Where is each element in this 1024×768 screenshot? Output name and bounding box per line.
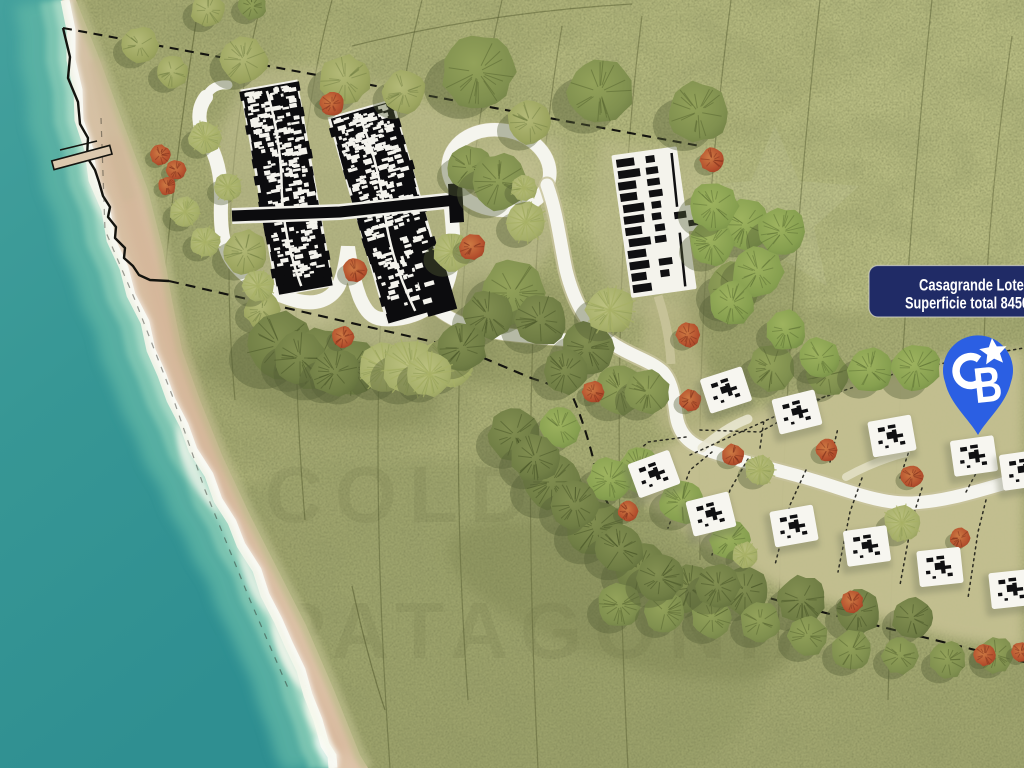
svg-text:B: B: [971, 355, 1005, 414]
svg-text:Superficie total 8450 m2: Superficie total 8450 m2: [905, 295, 1024, 313]
svg-text:Casagrande Lotes: Casagrande Lotes: [919, 277, 1024, 295]
